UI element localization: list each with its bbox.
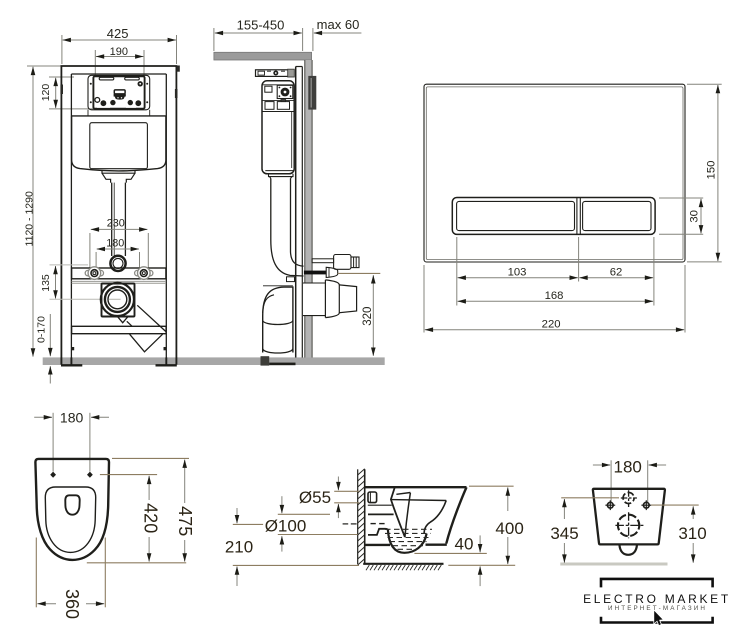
svg-text:62: 62 <box>610 266 623 278</box>
svg-text:ELECTRO MARKET: ELECTRO MARKET <box>583 592 731 606</box>
svg-text:120: 120 <box>40 84 52 102</box>
svg-text:180: 180 <box>614 458 642 477</box>
svg-text:320: 320 <box>362 307 374 326</box>
svg-text:310: 310 <box>678 524 706 543</box>
svg-text:103: 103 <box>508 266 527 278</box>
svg-text:230: 230 <box>107 218 125 230</box>
svg-text:Ø55: Ø55 <box>299 488 331 507</box>
svg-text:220: 220 <box>542 318 561 330</box>
svg-text:1120 - 1290: 1120 - 1290 <box>24 191 36 246</box>
svg-text:30: 30 <box>689 210 701 223</box>
svg-text:155-450: 155-450 <box>237 18 285 33</box>
svg-text:345: 345 <box>550 524 578 543</box>
svg-text:max 60: max 60 <box>317 17 360 32</box>
svg-text:420: 420 <box>141 503 161 533</box>
svg-text:190: 190 <box>110 46 128 58</box>
svg-text:135: 135 <box>40 274 52 292</box>
svg-text:40: 40 <box>455 534 474 553</box>
svg-text:168: 168 <box>545 290 564 302</box>
svg-text:150: 150 <box>705 161 717 180</box>
svg-text:425: 425 <box>107 26 129 41</box>
svg-text:210: 210 <box>225 537 253 556</box>
svg-text:180: 180 <box>60 409 84 425</box>
svg-text:ИНТЕРНЕТ-МАГАЗИН: ИНТЕРНЕТ-МАГАЗИН <box>608 605 707 612</box>
svg-text:475: 475 <box>175 506 195 536</box>
svg-text:Ø100: Ø100 <box>265 517 307 536</box>
svg-text:400: 400 <box>495 519 523 538</box>
svg-text:0-170: 0-170 <box>35 316 47 343</box>
svg-text:180: 180 <box>106 237 124 249</box>
svg-text:360: 360 <box>62 589 82 619</box>
